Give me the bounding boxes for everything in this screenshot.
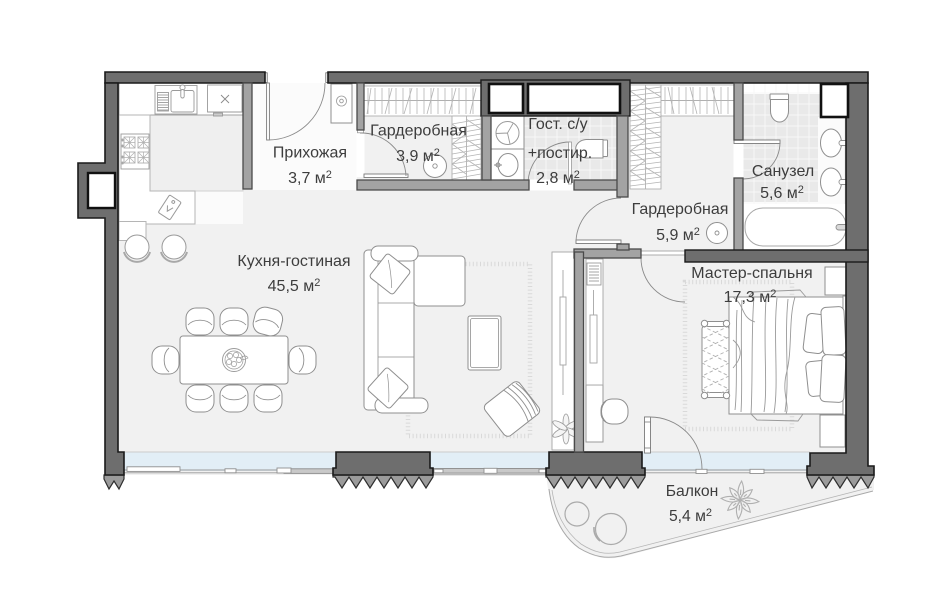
svg-text:Балкон: Балкон	[666, 483, 719, 500]
svg-text:Кухня-гостиная: Кухня-гостиная	[237, 253, 350, 270]
svg-text:5,6 м2: 5,6 м2	[760, 184, 804, 202]
svg-text:5,9 м2: 5,9 м2	[656, 226, 700, 244]
svg-text:Санузел: Санузел	[752, 163, 814, 180]
svg-text:3,9 м2: 3,9 м2	[396, 147, 440, 165]
svg-text:Гардеробная: Гардеробная	[370, 123, 467, 140]
svg-text:3,7 м2: 3,7 м2	[288, 169, 332, 187]
svg-text:5,4 м2: 5,4 м2	[669, 507, 712, 525]
svg-text:17,3 м2: 17,3 м2	[724, 288, 777, 306]
svg-text:+постир.: +постир.	[528, 145, 593, 162]
svg-text:45,5 м2: 45,5 м2	[268, 277, 321, 295]
svg-text:2,8 м2: 2,8 м2	[536, 169, 580, 187]
svg-text:Прихожая: Прихожая	[273, 145, 347, 162]
svg-text:Мастер-спальня: Мастер-спальня	[691, 265, 812, 282]
svg-text:Гардеробная: Гардеробная	[632, 201, 729, 218]
svg-text:Гост. с/у: Гост. с/у	[528, 116, 587, 133]
